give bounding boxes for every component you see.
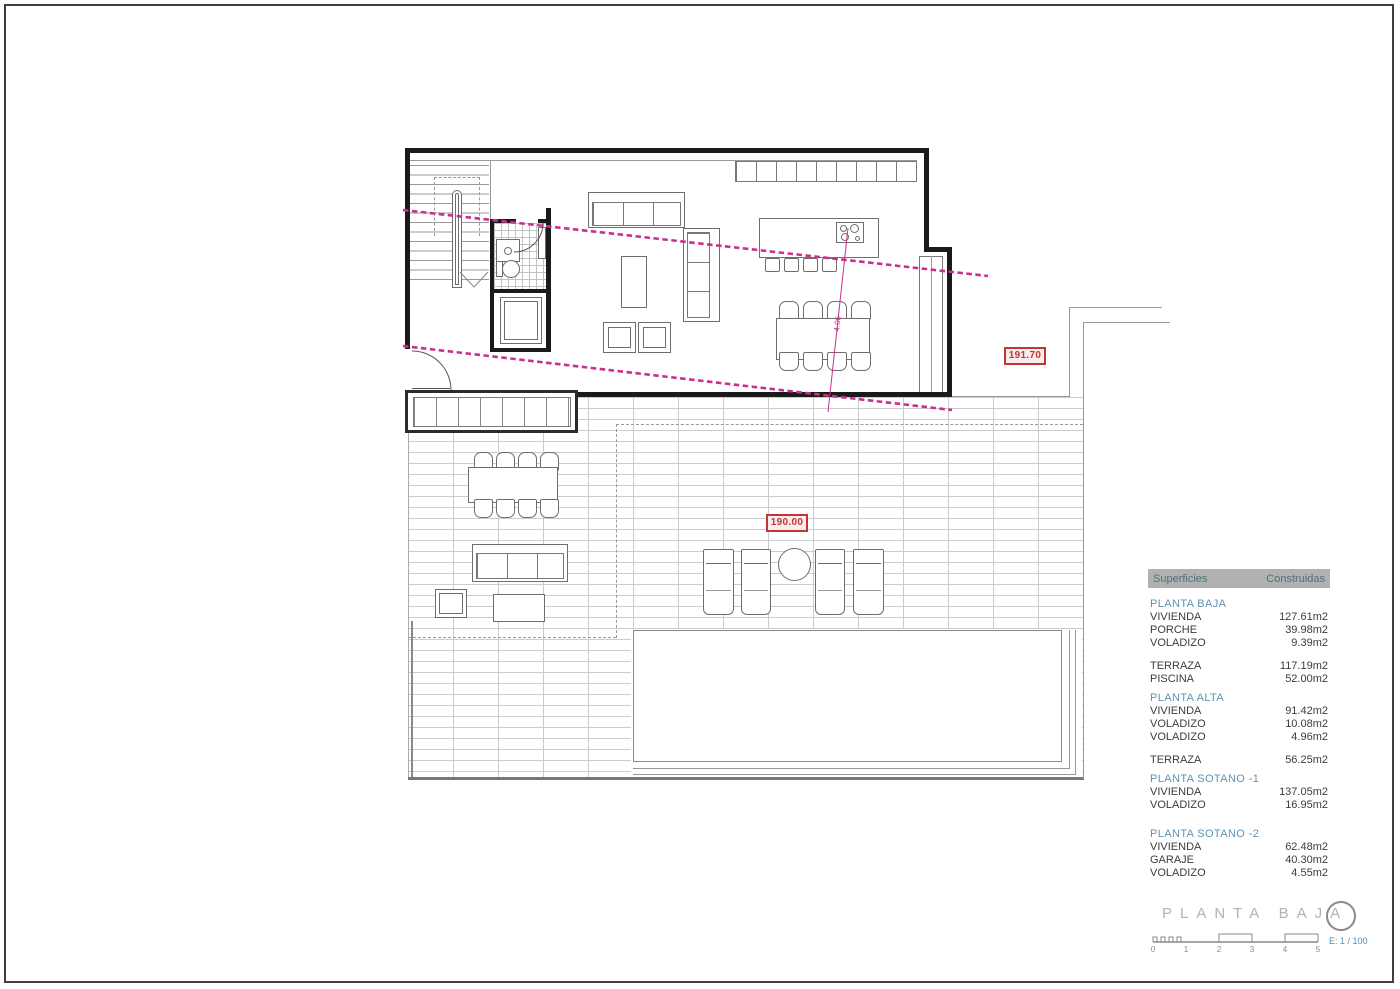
table-row-value: 117.19m2: [1280, 660, 1328, 673]
table-row-label: PLANTA ALTA: [1150, 692, 1224, 705]
elevation-label: 191.70: [1004, 347, 1046, 365]
table-row: GARAJE 40.30m2: [1148, 854, 1330, 867]
table-row: [1148, 650, 1330, 660]
table-row-label: VOLADIZO: [1150, 637, 1206, 650]
scale-tick: 2: [1215, 945, 1223, 954]
areas-table-header-col1: Superficies: [1153, 573, 1207, 585]
scale-tick: 4: [1281, 945, 1289, 954]
table-row: PORCHE 39.98m2: [1148, 624, 1330, 637]
table-row: PLANTA SOTANO -1: [1148, 773, 1330, 786]
table-row-label: VOLADIZO: [1150, 799, 1206, 812]
table-row-label: PISCINA: [1150, 673, 1194, 686]
table-row-value: 127.61m2: [1279, 611, 1328, 624]
stair-direction-arrow: [460, 272, 488, 287]
table-row: PLANTA ALTA: [1148, 692, 1330, 705]
table-row: VOLADIZO 16.95m2: [1148, 799, 1330, 812]
table-row: TERRAZA 56.25m2: [1148, 754, 1330, 767]
scale-tick: 0: [1149, 945, 1157, 954]
table-row-value: 52.00m2: [1285, 673, 1328, 686]
table-row: [1148, 812, 1330, 822]
section-line-lower: [403, 346, 952, 410]
table-row-value: 40.30m2: [1285, 854, 1328, 867]
elevation-label: 190.00: [766, 514, 808, 532]
table-row: VOLADIZO 4.96m2: [1148, 731, 1330, 744]
section-line-upper: [403, 210, 988, 276]
table-row-label: PLANTA SOTANO -1: [1150, 773, 1259, 786]
table-row-value: 16.95m2: [1285, 799, 1328, 812]
table-row: VIVIENDA 137.05m2: [1148, 786, 1330, 799]
sheet-title: PLANTA BAJA: [1162, 905, 1348, 922]
table-row-value: 4.55m2: [1291, 867, 1328, 880]
drawing-sheet: 4.06 191.70 190.00 Superficies Construid…: [0, 0, 1400, 989]
table-row: VOLADIZO 9.39m2: [1148, 637, 1330, 650]
table-row: PISCINA 52.00m2: [1148, 673, 1330, 686]
table-row-value: 39.98m2: [1285, 624, 1328, 637]
table-row-value: 10.08m2: [1285, 718, 1328, 731]
table-row-value: 137.05m2: [1279, 786, 1328, 799]
table-row-label: VOLADIZO: [1150, 867, 1206, 880]
table-row: VOLADIZO 10.08m2: [1148, 718, 1330, 731]
table-row-value: 4.96m2: [1291, 731, 1328, 744]
table-row: VIVIENDA 91.42m2: [1148, 705, 1330, 718]
areas-table-header: Superficies Construidas: [1148, 569, 1330, 588]
table-row: VIVIENDA 62.48m2: [1148, 841, 1330, 854]
table-row-label: VOLADIZO: [1150, 731, 1206, 744]
table-row-label: VIVIENDA: [1150, 841, 1201, 854]
table-row-value: 9.39m2: [1291, 637, 1328, 650]
entry-door-swing: [412, 351, 451, 390]
table-row: VIVIENDA 127.61m2: [1148, 611, 1330, 624]
table-row: PLANTA BAJA: [1148, 598, 1330, 611]
table-row-label: GARAJE: [1150, 854, 1194, 867]
table-row-label: VOLADIZO: [1150, 718, 1206, 731]
scale-tick: 1: [1182, 945, 1190, 954]
table-row-label: TERRAZA: [1150, 660, 1201, 673]
table-row: VOLADIZO 4.55m2: [1148, 867, 1330, 880]
table-row-value: 62.48m2: [1285, 841, 1328, 854]
bathroom-door-swing: [514, 223, 543, 252]
table-row-label: VIVIENDA: [1150, 786, 1201, 799]
table-row-label: PLANTA SOTANO -2: [1150, 828, 1259, 841]
table-row-label: PORCHE: [1150, 624, 1197, 637]
scale-label: E: 1 / 100: [1329, 936, 1368, 946]
dimension-text: 4.06: [832, 315, 843, 332]
areas-table-rows: PLANTA BAJA VIVIENDA 127.61m2 PORCHE 39.…: [1148, 592, 1330, 880]
table-row-label: VIVIENDA: [1150, 705, 1201, 718]
scale-bar: [1148, 925, 1333, 953]
areas-table-header-col2: Construidas: [1266, 573, 1325, 585]
table-row-value: 56.25m2: [1285, 754, 1328, 767]
table-row-label: PLANTA BAJA: [1150, 598, 1226, 611]
table-row: TERRAZA 117.19m2: [1148, 660, 1330, 673]
scale-tick: 3: [1248, 945, 1256, 954]
table-row: [1148, 744, 1330, 754]
scale-tick: 5: [1314, 945, 1322, 954]
table-row-value: 91.42m2: [1285, 705, 1328, 718]
table-row-label: TERRAZA: [1150, 754, 1201, 767]
table-row: PLANTA SOTANO -2: [1148, 828, 1330, 841]
table-row-label: VIVIENDA: [1150, 611, 1201, 624]
